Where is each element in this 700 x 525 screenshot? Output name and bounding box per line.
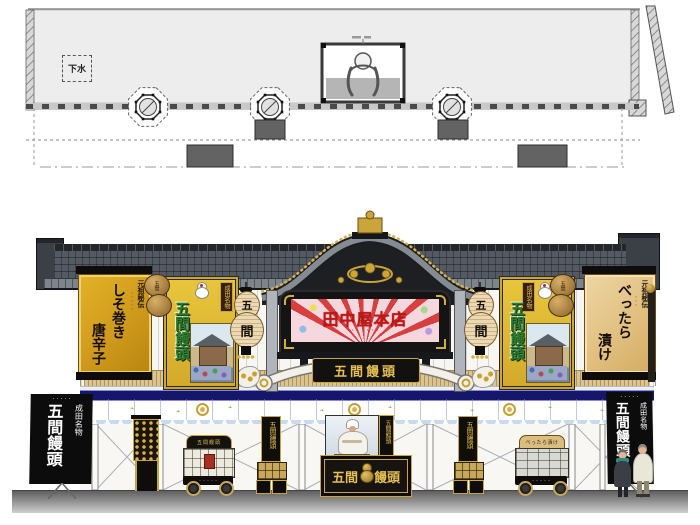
left-banner-top-bar (76, 266, 152, 274)
awning-sprig-7: ❧ (548, 406, 552, 411)
awning-sprig-6: ❧ (470, 409, 474, 414)
left-medallion-2 (146, 294, 172, 317)
right-cart-sign-text: べったら漬け (525, 439, 558, 446)
awning-crest-3 (503, 403, 516, 416)
craft-vertical-sign-text: 五間饅頭 (383, 420, 392, 444)
left-banner-bottom-bar (76, 372, 152, 380)
temple-body (199, 346, 227, 366)
person-woman (612, 449, 632, 498)
awning-sprig-8: ❧ (600, 409, 604, 414)
right-banner: 元祖秘伝 ・・・ べったら 漬け (584, 266, 654, 380)
awning-sprig-3: ❧ (228, 406, 232, 411)
stand-base-right (272, 480, 287, 494)
name-sign-panel: 田中屋本店 ・・・・・・ (291, 299, 439, 342)
right-corner-post (648, 288, 655, 382)
right-banner-line2: 漬け (595, 333, 615, 361)
corner-curl-tr (436, 295, 446, 305)
nobori-top-text: ・・・・・ (606, 394, 652, 400)
stand-drawers (257, 462, 287, 480)
man-leg-right (644, 481, 649, 494)
stand-sign-text: 五間饅頭 (267, 421, 277, 449)
center-sign-left-text: 五間 (332, 467, 358, 486)
gourd-char-2: 間 (474, 321, 487, 340)
awning-sprig-1: ❧ (130, 407, 134, 412)
name-sign-subtext: ・・・・・・ (291, 327, 439, 334)
temple-roof (193, 334, 231, 346)
floral-pillar (133, 415, 159, 491)
left-medallion-text: 五間 (154, 281, 161, 291)
stand-sign: 五間饅頭 (261, 416, 281, 462)
main-name-sign: 田中屋本店 ・・・・・・ (281, 292, 449, 352)
plan-left-wall (26, 10, 34, 110)
plan-fixture-1 (255, 120, 285, 139)
center-sign-gourd (360, 463, 372, 483)
plan-fixture-3 (187, 145, 233, 167)
right-display-stand: 五間饅頭 (453, 416, 483, 492)
left-banner: 元祖秘伝 ・・・・・ しそ巻き 唐辛子 (78, 266, 150, 380)
gourd-tassel-dots (237, 355, 255, 359)
left-gourd-lantern: 五 間 (228, 282, 264, 366)
pillar-lower (135, 461, 159, 491)
left-steamer-cart: 五間饅頭 ・・・・・ (182, 435, 234, 492)
left-nobori-stand (40, 483, 84, 499)
right-banner-top-bar (582, 266, 656, 274)
woman-coat (614, 461, 631, 487)
plan-fixture-2 (438, 120, 468, 139)
man-leg-left (637, 481, 642, 494)
awning-sprig-2: ❧ (176, 410, 180, 415)
arch-sign-text: 五間饅頭 (334, 361, 398, 380)
left-poster: 成田名物 五間饅頭 (164, 277, 238, 389)
right-poster-title: 五間饅頭 (506, 301, 527, 361)
gourd-tassel (241, 346, 251, 355)
woman-leg-right (624, 487, 628, 497)
cart-steamer-boxes (183, 448, 235, 478)
cart-wheel-left (186, 481, 201, 496)
right-pickle-cart: べったら漬け ・・・・・ (514, 435, 568, 492)
left-cart-base-text: ・・・・・ (198, 478, 218, 484)
cart-noren (204, 454, 215, 469)
right-poster-temple-image (526, 323, 570, 383)
stand-drawers (454, 462, 484, 480)
arch-sign-panel: 五間饅頭 (312, 358, 420, 383)
corner-curl-tl (284, 295, 294, 305)
nobori-small-text: 成田名物 (73, 404, 85, 436)
gable-finial (358, 218, 382, 233)
right-banner-bottom-bar (582, 372, 656, 380)
right-post-knob (646, 284, 655, 293)
floor-plan (0, 0, 700, 210)
temple-crowd (191, 366, 231, 380)
corner-curl-br (436, 339, 446, 349)
left-nobori-flag: ・・・・・ 成田名物 五間饅頭 (29, 394, 93, 484)
center-lower-sign: 五間 饅頭 (321, 456, 411, 496)
gourd-tassel-dots (471, 355, 489, 359)
left-poster-title: 五間饅頭 (171, 301, 192, 361)
pillar-floral-panel (133, 419, 159, 461)
gourd-tassel (475, 346, 485, 355)
stand-base-left (453, 480, 468, 494)
awning-crest-1 (196, 403, 209, 416)
gourd-bottom (195, 287, 209, 299)
emblem-bottom (360, 470, 374, 483)
plan-fixture-4 (518, 145, 567, 167)
plan-diagonal-wall (646, 6, 674, 114)
gourd-lower-bulb: 間 (464, 312, 498, 348)
craft-vertical-sign: 五間饅頭 (379, 415, 394, 461)
architectural-drawing-page: { "plan": { "drain_label": "下水" }, "faca… (0, 0, 700, 525)
awning-sprig-4: ❧ (320, 409, 324, 414)
nobori-top-text: ・・・・・ (31, 396, 93, 402)
left-poster-gourd-emblem (195, 282, 207, 298)
gourd-lower-bulb: 間 (230, 312, 264, 348)
plan-counter-person (321, 36, 405, 103)
left-banner-line1: しそ巻き (109, 283, 129, 339)
gourd-char-2: 間 (240, 321, 253, 340)
man-shoes (636, 494, 650, 497)
craftsman-poster (325, 415, 379, 460)
person-man (631, 444, 653, 498)
left-banner-body: 元祖秘伝 ・・・・・ しそ巻き 唐辛子 (78, 274, 152, 374)
temple-body (535, 346, 563, 366)
left-banner-sub: ・・・・・ (129, 291, 135, 311)
drain-label: 下水 (68, 62, 86, 75)
corner-curl-bl (284, 339, 294, 349)
right-banner-line1: べったら (615, 283, 635, 339)
man-jacket (633, 453, 653, 483)
nobori-large-text: 五間饅頭 (40, 403, 65, 467)
cart-wheel-right (219, 481, 234, 496)
nobori-small-text: 成田名物 (637, 402, 647, 430)
stand-sign-text: 五間饅頭 (464, 421, 474, 449)
left-banner-line2: 唐辛子 (89, 323, 109, 365)
temple-crowd (527, 366, 567, 380)
right-cart-base-text: ・・・・・ (531, 478, 551, 484)
cart-wheel-left (518, 481, 533, 496)
craftsman-body (338, 431, 368, 455)
craftsman-arm (342, 440, 362, 443)
stand-base-right (469, 480, 484, 494)
drain-label-box: 下水 (62, 55, 92, 82)
right-medallion-2 (548, 294, 574, 317)
temple-roof (529, 334, 567, 346)
gourd-char-1: 五 (242, 297, 253, 313)
cart-wheel-right (553, 481, 568, 496)
left-cart-sign-text: 五間饅頭 (197, 439, 221, 446)
left-display-stand: 五間饅頭 (256, 416, 286, 492)
gourd-char-1: 五 (476, 297, 487, 313)
woman-leg-left (618, 487, 622, 497)
column-1 (129, 88, 168, 127)
stand-sign: 五間饅頭 (458, 416, 478, 462)
cart-barrel-boxes (515, 448, 569, 478)
right-poster-gourd-emblem (538, 282, 550, 298)
right-medallion-text: 五間 (560, 281, 567, 291)
plan-right-wall (631, 10, 639, 100)
center-sign-right-text: 饅頭 (374, 467, 400, 486)
awning-sprig-5: ❧ (388, 406, 392, 411)
stand-base-left (256, 480, 271, 494)
right-gourd-lantern: 五 間 (462, 282, 498, 366)
